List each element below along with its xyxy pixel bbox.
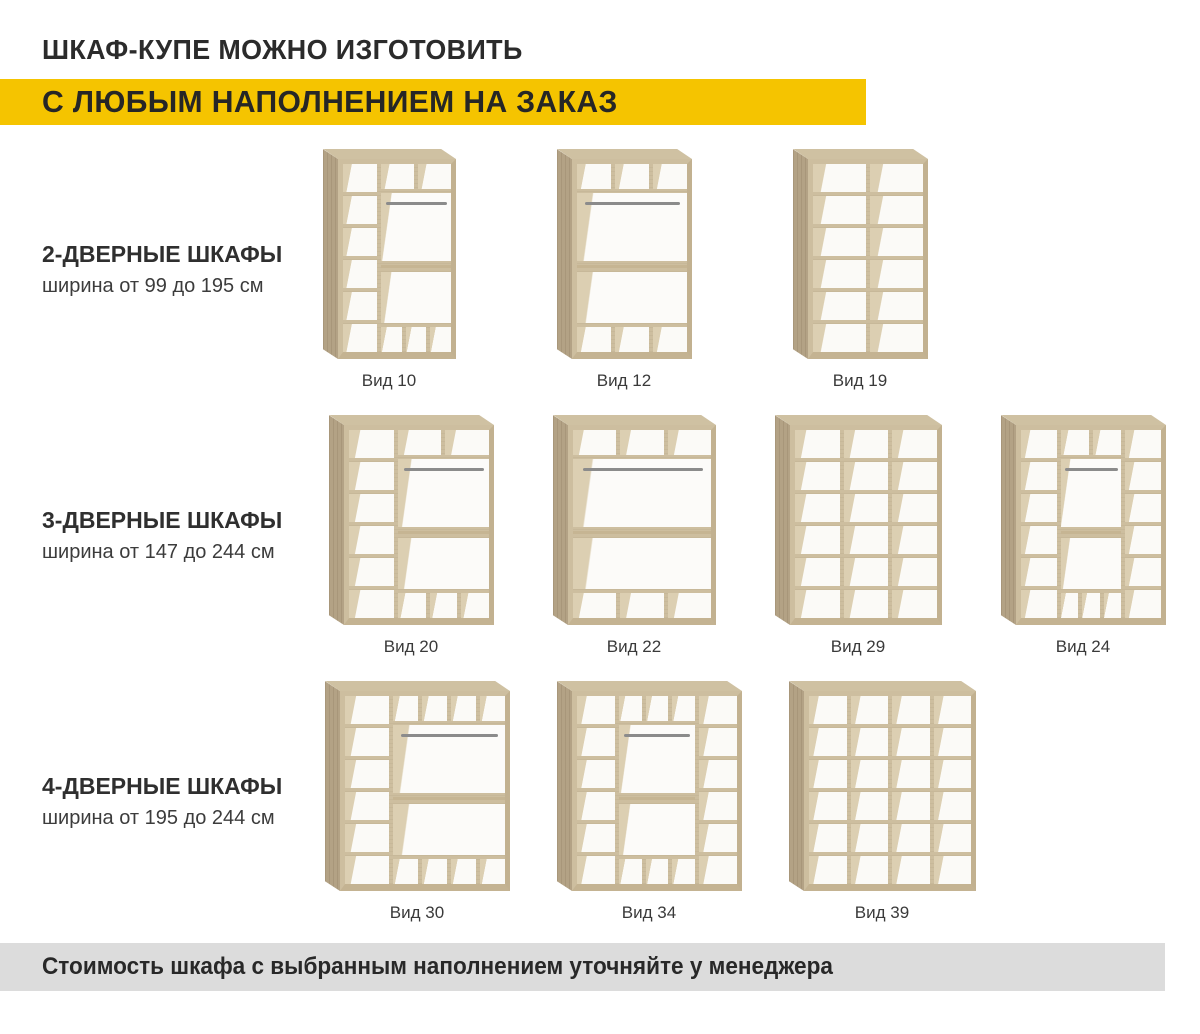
hanging-column bbox=[381, 164, 451, 352]
product-figure: Вид 10 bbox=[322, 147, 456, 391]
shelf-cell bbox=[892, 824, 930, 852]
cubby-cell bbox=[406, 327, 427, 352]
row-title: 4-ДВЕРНЫЕ ШКАФЫ bbox=[42, 773, 300, 800]
wardrobe-figure bbox=[568, 425, 716, 625]
wardrobe-body bbox=[344, 425, 494, 625]
shelf-cell bbox=[892, 462, 937, 490]
product-rows: 2-ДВЕРНЫЕ ШКАФЫширина от 99 до 195 смВид… bbox=[0, 147, 1200, 923]
bottom-cubby-row bbox=[393, 859, 505, 884]
wardrobe-top-panel bbox=[775, 415, 942, 425]
shelf-column bbox=[577, 696, 615, 884]
shelf-cell bbox=[870, 292, 923, 320]
product-figure: Вид 39 bbox=[788, 679, 976, 923]
hanging-section bbox=[573, 459, 711, 527]
cubby-cell bbox=[1082, 593, 1100, 618]
wardrobe-body bbox=[568, 425, 716, 625]
clothes-rod-icon bbox=[585, 202, 681, 205]
shelf-cell bbox=[795, 430, 840, 458]
wardrobe-body bbox=[808, 159, 928, 359]
shelf-column bbox=[892, 430, 937, 618]
shelf-cell bbox=[699, 696, 737, 724]
shelf-cell bbox=[851, 792, 889, 820]
cubby-cell bbox=[430, 327, 451, 352]
middle-shelf bbox=[573, 531, 711, 534]
wardrobe-figure bbox=[808, 159, 928, 359]
shelf-cell bbox=[795, 590, 840, 618]
shelf-cell bbox=[870, 164, 923, 192]
footer-text: Стоимость шкафа с выбранным наполнением … bbox=[42, 953, 833, 981]
top-cubby-row bbox=[381, 164, 451, 189]
shelf-cell bbox=[934, 696, 972, 724]
row-label: 2-ДВЕРНЫЕ ШКАФЫширина от 99 до 195 см bbox=[0, 241, 300, 298]
clothes-rod-icon bbox=[624, 734, 690, 737]
hanging-column bbox=[619, 696, 695, 884]
shelf-cell bbox=[892, 856, 930, 884]
shelf-cell bbox=[892, 760, 930, 788]
cubby-cell bbox=[672, 696, 695, 721]
shelf-column bbox=[795, 430, 840, 618]
shelf-column bbox=[349, 430, 394, 618]
product-figure: Вид 19 bbox=[792, 147, 928, 391]
cubby-cell bbox=[418, 164, 451, 189]
hanging-section bbox=[398, 459, 489, 527]
product-figure: Вид 12 bbox=[556, 147, 692, 391]
cubby-cell bbox=[422, 696, 447, 721]
wardrobe-body bbox=[338, 159, 456, 359]
wardrobe-figure bbox=[572, 691, 742, 891]
wardrobe-side-panel bbox=[557, 149, 572, 359]
hanging-column bbox=[577, 164, 687, 352]
wardrobe-top-panel bbox=[329, 415, 494, 425]
hanging-column bbox=[573, 430, 711, 618]
lower-open-section bbox=[381, 272, 451, 323]
shelf-cell bbox=[809, 760, 847, 788]
cubby-cell bbox=[422, 859, 447, 884]
shelf-column bbox=[809, 696, 847, 884]
product-row: 4-ДВЕРНЫЕ ШКАФЫширина от 195 до 244 смВи… bbox=[0, 679, 1200, 923]
row-title: 3-ДВЕРНЫЕ ШКАФЫ bbox=[42, 507, 300, 534]
cubby-cell bbox=[573, 593, 616, 618]
top-cubby-row bbox=[1061, 430, 1122, 455]
shelf-cell bbox=[851, 760, 889, 788]
hanging-column bbox=[1061, 430, 1122, 618]
lower-open-section bbox=[1061, 538, 1122, 589]
shelf-cell bbox=[844, 526, 889, 554]
shelf-cell bbox=[813, 228, 866, 256]
shelf-cell bbox=[870, 196, 923, 224]
shelf-cell bbox=[870, 228, 923, 256]
hanging-section bbox=[1061, 459, 1122, 527]
cubby-cell bbox=[1093, 430, 1121, 455]
shelf-cell bbox=[343, 228, 377, 256]
shelf-cell bbox=[699, 792, 737, 820]
shelf-cell bbox=[870, 324, 923, 352]
wardrobe-body bbox=[340, 691, 510, 891]
lower-open-section bbox=[398, 538, 489, 589]
wardrobe-figure bbox=[1016, 425, 1166, 625]
shelf-cell bbox=[343, 164, 377, 192]
shelf-cell bbox=[892, 792, 930, 820]
wardrobe-top-panel bbox=[793, 149, 928, 159]
product-figure: Вид 29 bbox=[774, 413, 942, 657]
cubby-cell bbox=[615, 164, 649, 189]
shelf-cell bbox=[345, 792, 389, 820]
cubby-cell bbox=[430, 593, 458, 618]
shelf-cell bbox=[1021, 558, 1057, 586]
hanging-section bbox=[393, 725, 505, 793]
shelf-cell bbox=[345, 760, 389, 788]
figure-caption: Вид 39 bbox=[855, 903, 909, 923]
wardrobe-side-panel bbox=[325, 681, 340, 891]
row-label: 4-ДВЕРНЫЕ ШКАФЫширина от 195 до 244 см bbox=[0, 773, 300, 830]
wardrobe-figure bbox=[338, 159, 456, 359]
product-row: 2-ДВЕРНЫЕ ШКАФЫширина от 99 до 195 смВид… bbox=[0, 147, 1200, 391]
wardrobe-figure bbox=[344, 425, 494, 625]
shelf-cell bbox=[343, 324, 377, 352]
cubby-cell bbox=[480, 859, 505, 884]
shelf-cell bbox=[795, 462, 840, 490]
product-figure: Вид 22 bbox=[552, 413, 716, 657]
lower-open-section bbox=[393, 804, 505, 855]
shelf-column bbox=[934, 696, 972, 884]
shelf-cell bbox=[892, 494, 937, 522]
shelf-cell bbox=[851, 728, 889, 756]
shelf-cell bbox=[795, 494, 840, 522]
figure-caption: Вид 22 bbox=[607, 637, 661, 657]
shelf-column bbox=[1125, 430, 1161, 618]
top-cubby-row bbox=[577, 164, 687, 189]
shelf-cell bbox=[345, 856, 389, 884]
shelf-column bbox=[699, 696, 737, 884]
product-figure: Вид 30 bbox=[324, 679, 510, 923]
shelf-cell bbox=[1021, 526, 1057, 554]
shelf-cell bbox=[577, 760, 615, 788]
shelf-cell bbox=[844, 462, 889, 490]
shelf-cell bbox=[349, 590, 394, 618]
shelf-column bbox=[343, 164, 377, 352]
clothes-rod-icon bbox=[1065, 468, 1118, 471]
wardrobe-figure bbox=[804, 691, 976, 891]
cubby-cell bbox=[620, 430, 663, 455]
figure-caption: Вид 19 bbox=[833, 371, 887, 391]
bottom-cubby-row bbox=[1061, 593, 1122, 618]
wardrobe-top-panel bbox=[557, 149, 692, 159]
lower-open-section bbox=[619, 804, 695, 855]
cubby-cell bbox=[577, 164, 611, 189]
middle-shelf bbox=[619, 797, 695, 800]
middle-shelf bbox=[393, 797, 505, 800]
shelf-cell bbox=[851, 856, 889, 884]
shelf-cell bbox=[349, 430, 394, 458]
top-cubby-row bbox=[398, 430, 489, 455]
bottom-cubby-row bbox=[577, 327, 687, 352]
shelf-cell bbox=[813, 324, 866, 352]
wardrobe-side-panel bbox=[1001, 415, 1016, 625]
shelf-cell bbox=[809, 856, 847, 884]
shelf-cell bbox=[1125, 494, 1161, 522]
shelf-cell bbox=[851, 696, 889, 724]
product-figure: Вид 34 bbox=[556, 679, 742, 923]
figure-caption: Вид 24 bbox=[1056, 637, 1110, 657]
cubby-cell bbox=[381, 327, 402, 352]
shelf-cell bbox=[343, 292, 377, 320]
cubby-cell bbox=[577, 327, 611, 352]
clothes-rod-icon bbox=[583, 468, 703, 471]
wardrobe-side-panel bbox=[775, 415, 790, 625]
page: ШКАФ-КУПЕ МОЖНО ИЗГОТОВИТЬ С ЛЮБЫМ НАПОЛ… bbox=[0, 34, 1200, 1034]
cubby-cell bbox=[646, 696, 669, 721]
lower-open-section bbox=[573, 538, 711, 589]
lower-open-section bbox=[577, 272, 687, 323]
cubby-cell bbox=[393, 859, 418, 884]
wardrobe-side-panel bbox=[323, 149, 338, 359]
figure-caption: Вид 10 bbox=[362, 371, 416, 391]
wardrobe-body bbox=[572, 691, 742, 891]
hanging-column bbox=[393, 696, 505, 884]
shelf-cell bbox=[892, 430, 937, 458]
shelf-cell bbox=[1021, 590, 1057, 618]
top-cubby-row bbox=[573, 430, 711, 455]
shelf-cell bbox=[1125, 526, 1161, 554]
cubby-cell bbox=[393, 696, 418, 721]
shelf-cell bbox=[699, 728, 737, 756]
cubby-cell bbox=[668, 593, 711, 618]
wardrobe-top-panel bbox=[553, 415, 716, 425]
clothes-rod-icon bbox=[401, 734, 499, 737]
row-subtitle: ширина от 195 до 244 см bbox=[42, 807, 300, 830]
product-figure: Вид 24 bbox=[1000, 413, 1166, 657]
wardrobe-top-panel bbox=[1001, 415, 1166, 425]
wardrobe-figure bbox=[790, 425, 942, 625]
shelf-cell bbox=[809, 696, 847, 724]
figure-caption: Вид 29 bbox=[831, 637, 885, 657]
cubby-cell bbox=[573, 430, 616, 455]
wardrobe-body bbox=[1016, 425, 1166, 625]
bottom-cubby-row bbox=[398, 593, 489, 618]
cubby-cell bbox=[461, 593, 489, 618]
shelf-cell bbox=[892, 558, 937, 586]
shelf-cell bbox=[1125, 558, 1161, 586]
shelf-cell bbox=[577, 824, 615, 852]
cubby-cell bbox=[1061, 593, 1079, 618]
shelf-column bbox=[892, 696, 930, 884]
cubby-cell bbox=[619, 859, 642, 884]
cubby-cell bbox=[672, 859, 695, 884]
shelf-cell bbox=[699, 856, 737, 884]
headline-highlight-bar: С ЛЮБЫМ НАПОЛНЕНИЕМ НА ЗАКАЗ bbox=[0, 79, 866, 125]
top-cubby-row bbox=[619, 696, 695, 721]
middle-shelf bbox=[577, 265, 687, 268]
shelf-cell bbox=[934, 728, 972, 756]
middle-shelf bbox=[398, 531, 489, 534]
figure-caption: Вид 30 bbox=[390, 903, 444, 923]
cubby-cell bbox=[480, 696, 505, 721]
shelf-cell bbox=[1125, 430, 1161, 458]
figure-caption: Вид 20 bbox=[384, 637, 438, 657]
shelf-cell bbox=[349, 558, 394, 586]
hanging-section bbox=[619, 725, 695, 793]
shelf-cell bbox=[870, 260, 923, 288]
shelf-cell bbox=[892, 728, 930, 756]
shelf-cell bbox=[795, 526, 840, 554]
shelf-cell bbox=[844, 558, 889, 586]
shelf-cell bbox=[345, 728, 389, 756]
shelf-cell bbox=[349, 462, 394, 490]
middle-shelf bbox=[381, 265, 451, 268]
row-subtitle: ширина от 147 до 244 см bbox=[42, 541, 300, 564]
shelf-cell bbox=[1021, 494, 1057, 522]
footer-note-bar: Стоимость шкафа с выбранным наполнением … bbox=[0, 943, 1165, 991]
shelf-cell bbox=[343, 260, 377, 288]
shelf-cell bbox=[699, 824, 737, 852]
headline-line2: С ЛЮБЫМ НАПОЛНЕНИЕМ НА ЗАКАЗ bbox=[42, 84, 618, 120]
wardrobe-body bbox=[790, 425, 942, 625]
shelf-cell bbox=[892, 696, 930, 724]
shelf-cell bbox=[813, 164, 866, 192]
shelf-cell bbox=[809, 792, 847, 820]
headline-line1: ШКАФ-КУПЕ МОЖНО ИЗГОТОВИТЬ bbox=[42, 34, 1154, 66]
shelf-cell bbox=[577, 696, 615, 724]
figures-strip: Вид 20Вид 22Вид 29Вид 24 bbox=[300, 413, 1166, 657]
shelf-cell bbox=[934, 824, 972, 852]
bottom-cubby-row bbox=[573, 593, 711, 618]
shelf-cell bbox=[345, 696, 389, 724]
shelf-cell bbox=[1125, 590, 1161, 618]
cubby-cell bbox=[615, 327, 649, 352]
wardrobe-top-panel bbox=[323, 149, 456, 159]
shelf-cell bbox=[813, 196, 866, 224]
shelf-cell bbox=[1021, 462, 1057, 490]
shelf-cell bbox=[809, 728, 847, 756]
shelf-cell bbox=[844, 494, 889, 522]
shelf-column bbox=[870, 164, 923, 352]
shelf-cell bbox=[577, 792, 615, 820]
cubby-cell bbox=[620, 593, 663, 618]
shelf-cell bbox=[1021, 430, 1057, 458]
cubby-cell bbox=[619, 696, 642, 721]
cubby-cell bbox=[653, 164, 687, 189]
product-figure: Вид 20 bbox=[328, 413, 494, 657]
shelf-column bbox=[844, 430, 889, 618]
cubby-cell bbox=[653, 327, 687, 352]
wardrobe-side-panel bbox=[553, 415, 568, 625]
cubby-cell bbox=[451, 696, 476, 721]
hanging-section bbox=[577, 193, 687, 261]
cubby-cell bbox=[1061, 430, 1089, 455]
cubby-cell bbox=[381, 164, 414, 189]
row-title: 2-ДВЕРНЫЕ ШКАФЫ bbox=[42, 241, 300, 268]
figure-caption: Вид 34 bbox=[622, 903, 676, 923]
shelf-cell bbox=[934, 792, 972, 820]
cubby-cell bbox=[398, 430, 442, 455]
cubby-cell bbox=[451, 859, 476, 884]
shelf-cell bbox=[345, 824, 389, 852]
shelf-column bbox=[851, 696, 889, 884]
shelf-cell bbox=[809, 824, 847, 852]
shelf-column bbox=[345, 696, 389, 884]
wardrobe-top-panel bbox=[789, 681, 976, 691]
row-subtitle: ширина от 99 до 195 см bbox=[42, 275, 300, 298]
shelf-cell bbox=[892, 526, 937, 554]
clothes-rod-icon bbox=[404, 468, 483, 471]
wardrobe-body bbox=[572, 159, 692, 359]
shelf-column bbox=[1021, 430, 1057, 618]
shelf-cell bbox=[934, 760, 972, 788]
figures-strip: Вид 30Вид 34Вид 39 bbox=[300, 679, 976, 923]
shelf-cell bbox=[844, 430, 889, 458]
wardrobe-figure bbox=[572, 159, 692, 359]
shelf-cell bbox=[577, 856, 615, 884]
shelf-cell bbox=[1125, 462, 1161, 490]
shelf-cell bbox=[349, 494, 394, 522]
top-cubby-row bbox=[393, 696, 505, 721]
cubby-cell bbox=[445, 430, 489, 455]
wardrobe-side-panel bbox=[793, 149, 808, 359]
wardrobe-side-panel bbox=[557, 681, 572, 891]
shelf-cell bbox=[795, 558, 840, 586]
shelf-cell bbox=[934, 856, 972, 884]
shelf-cell bbox=[343, 196, 377, 224]
figure-caption: Вид 12 bbox=[597, 371, 651, 391]
hanging-section bbox=[381, 193, 451, 261]
cubby-cell bbox=[1104, 593, 1122, 618]
wardrobe-side-panel bbox=[789, 681, 804, 891]
product-row: 3-ДВЕРНЫЕ ШКАФЫширина от 147 до 244 смВи… bbox=[0, 413, 1200, 657]
cubby-cell bbox=[398, 593, 426, 618]
shelf-cell bbox=[349, 526, 394, 554]
shelf-cell bbox=[577, 728, 615, 756]
wardrobe-top-panel bbox=[557, 681, 742, 691]
wardrobe-top-panel bbox=[325, 681, 510, 691]
cubby-cell bbox=[668, 430, 711, 455]
shelf-cell bbox=[699, 760, 737, 788]
shelf-cell bbox=[813, 260, 866, 288]
bottom-cubby-row bbox=[381, 327, 451, 352]
shelf-cell bbox=[844, 590, 889, 618]
figures-strip: Вид 10Вид 12Вид 19 bbox=[300, 147, 928, 391]
wardrobe-side-panel bbox=[329, 415, 344, 625]
middle-shelf bbox=[1061, 531, 1122, 534]
row-label: 3-ДВЕРНЫЕ ШКАФЫширина от 147 до 244 см bbox=[0, 507, 300, 564]
wardrobe-body bbox=[804, 691, 976, 891]
shelf-cell bbox=[892, 590, 937, 618]
shelf-cell bbox=[851, 824, 889, 852]
clothes-rod-icon bbox=[386, 202, 447, 205]
shelf-cell bbox=[813, 292, 866, 320]
shelf-column bbox=[813, 164, 866, 352]
hanging-column bbox=[398, 430, 489, 618]
bottom-cubby-row bbox=[619, 859, 695, 884]
cubby-cell bbox=[646, 859, 669, 884]
wardrobe-figure bbox=[340, 691, 510, 891]
